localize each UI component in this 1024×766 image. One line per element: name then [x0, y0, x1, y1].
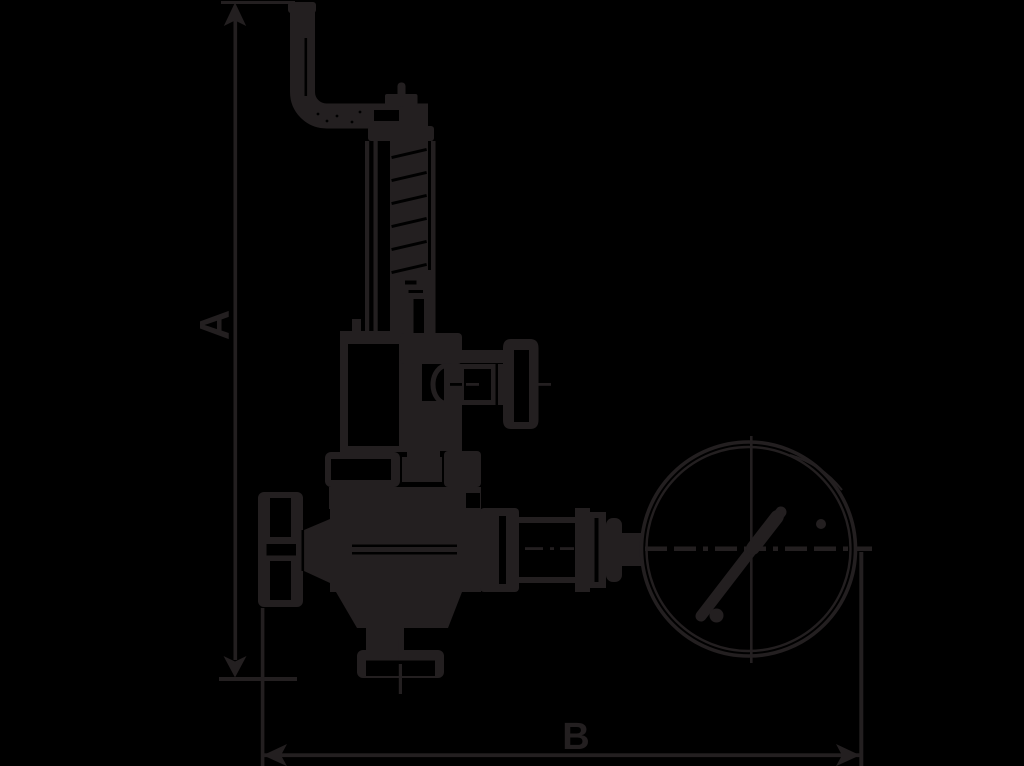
svg-text:A: A: [191, 310, 238, 340]
svg-text:B: B: [562, 716, 589, 758]
